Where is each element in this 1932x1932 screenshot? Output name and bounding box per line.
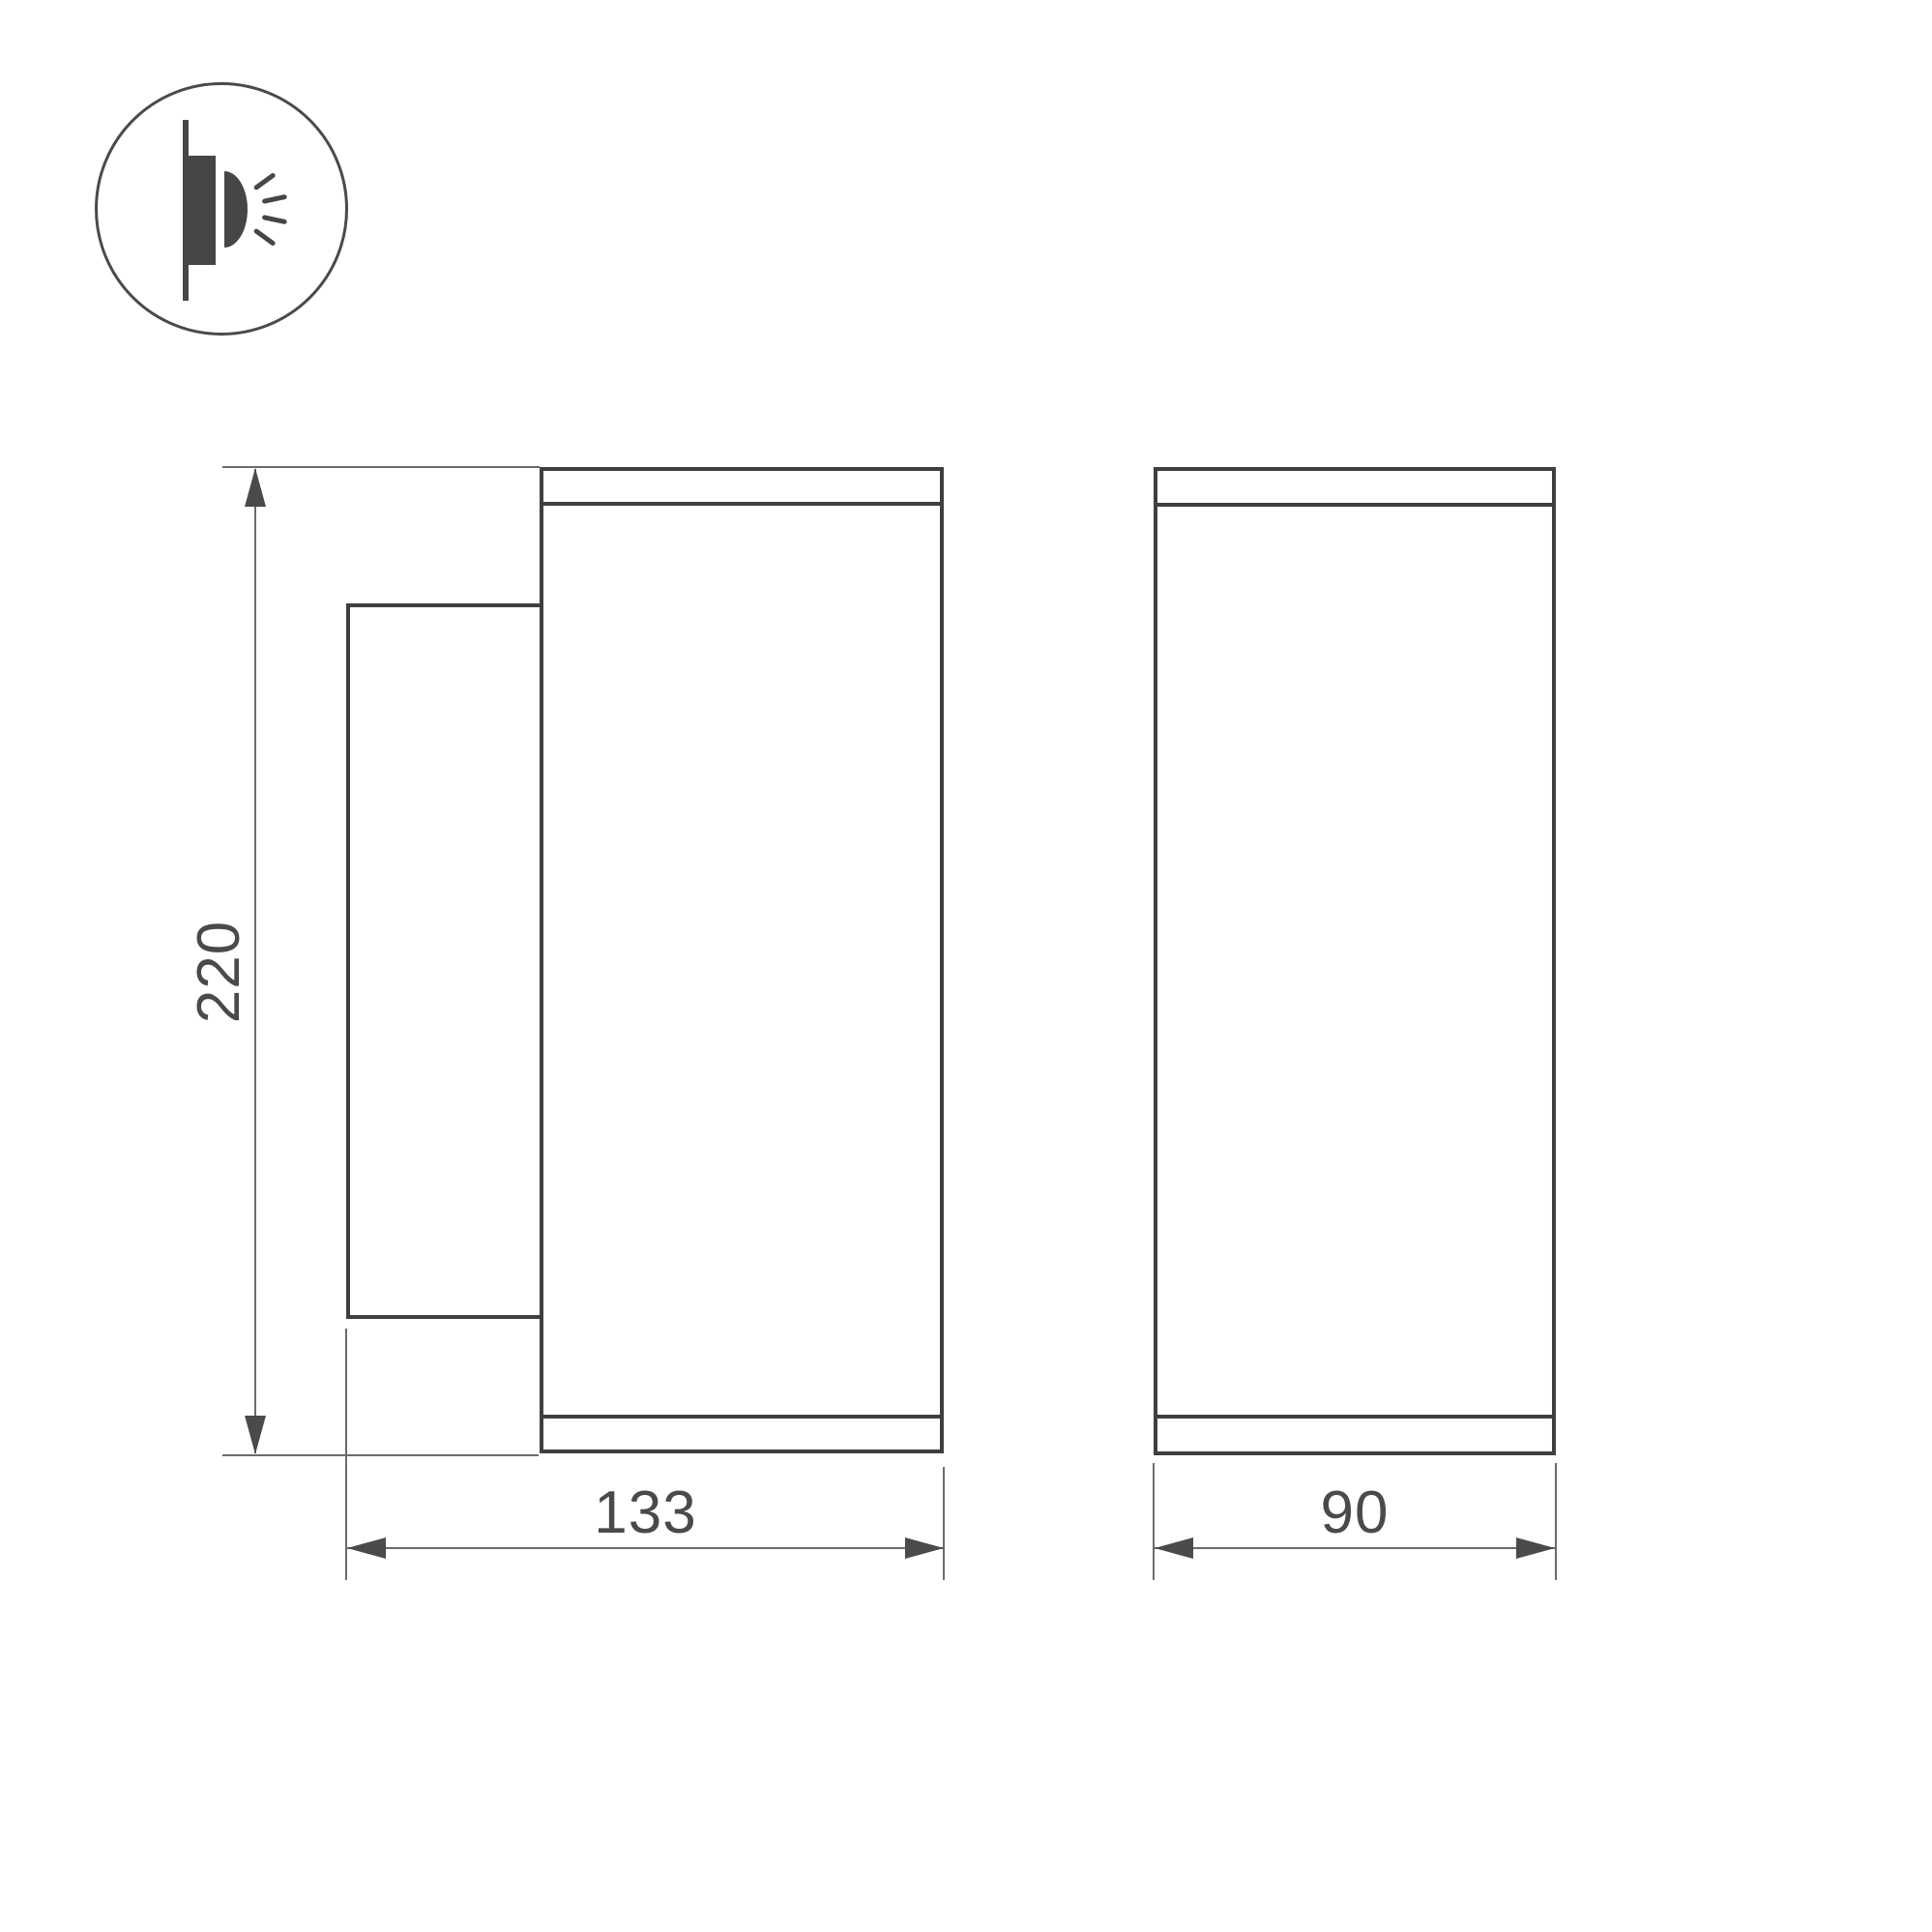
arrowhead-down-icon xyxy=(245,1416,266,1454)
front-body-outline xyxy=(1154,467,1556,1455)
extension-line xyxy=(222,1454,539,1456)
extension-line xyxy=(222,466,540,468)
technical-drawing-canvas: 220 133 90 xyxy=(0,0,1932,1932)
dimension-line xyxy=(347,1547,944,1549)
arrowhead-up-icon xyxy=(245,468,266,507)
depth-dimension-label: 133 xyxy=(347,1482,944,1544)
dimension-line xyxy=(1155,1547,1555,1549)
width-dimension-label: 90 xyxy=(1155,1482,1555,1544)
extension-line xyxy=(1555,1463,1557,1580)
height-dimension-label: 220 xyxy=(189,865,250,1078)
dimension-line xyxy=(254,469,256,1453)
side-bottom-cap-line xyxy=(540,1415,944,1419)
side-body-outline xyxy=(540,467,944,1453)
mounting-plate-outline xyxy=(346,603,540,1319)
front-bottom-cap-line xyxy=(1154,1415,1556,1419)
side-top-cap-line xyxy=(540,502,944,506)
wall-mount-light-icon xyxy=(187,156,216,265)
badge-circle xyxy=(95,82,348,336)
front-top-cap-line xyxy=(1154,503,1556,507)
